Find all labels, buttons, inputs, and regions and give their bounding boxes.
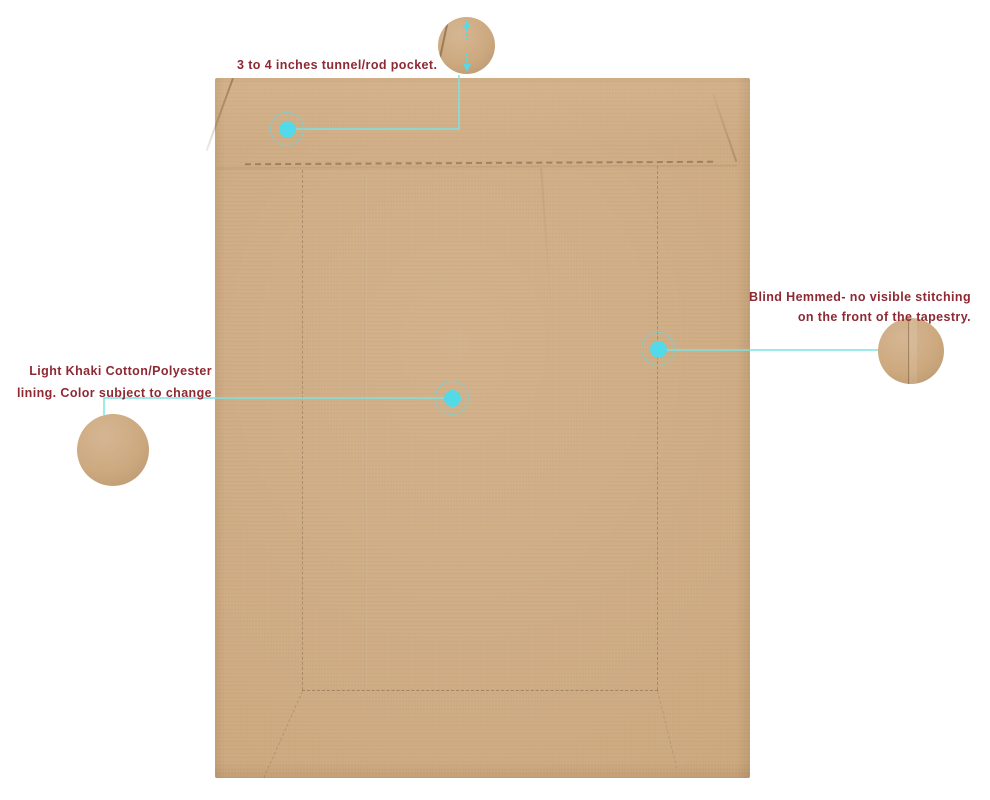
rod-pocket-label: 3 to 4 inches tunnel/rod pocket. <box>237 58 437 72</box>
marker-dot-icon <box>444 390 461 407</box>
blind-hem-stitch-bottom <box>302 690 658 691</box>
lining-label-line2: lining. Color subject to change <box>17 382 212 404</box>
lining-label-line1: Light Khaki Cotton/Polyester <box>17 360 212 382</box>
blind-hem-stitch-right <box>657 166 658 690</box>
blind-hem-label-line2: on the front of the tapestry. <box>749 307 971 327</box>
marker-dot-icon <box>650 341 667 358</box>
blind-hem-seam-highlight <box>910 318 917 384</box>
blind-hem-detail-circle <box>878 318 944 384</box>
lining-label: Light Khaki Cotton/Polyester lining. Col… <box>17 360 212 404</box>
bottom-left-crease <box>263 691 303 778</box>
blind-hem-label: Blind Hemmed- no visible stitching on th… <box>749 287 971 327</box>
tapestry-fabric-panel <box>215 78 750 778</box>
rod-pocket-seam-shadow <box>217 165 737 171</box>
lining-marker-icon <box>435 381 469 415</box>
center-fold-crease <box>365 173 367 688</box>
measure-arrows-icon <box>438 17 495 74</box>
rod-pocket-detail-circle <box>438 17 495 74</box>
blind-hem-label-line1: Blind Hemmed- no visible stitching <box>749 287 971 307</box>
tapestry-annotation-diagram: 3 to 4 inches tunnel/rod pocket. Blind H… <box>0 0 990 800</box>
lining-swatch-circle <box>77 414 149 486</box>
blind-hem-seam <box>908 318 909 384</box>
blind-hem-marker-icon <box>641 332 675 366</box>
rod-pocket-marker-icon <box>270 112 304 146</box>
bottom-right-crease <box>657 691 677 769</box>
upper-fold-crease <box>540 168 551 308</box>
blind-hem-stitch-left <box>302 170 303 690</box>
marker-dot-icon <box>279 121 296 138</box>
